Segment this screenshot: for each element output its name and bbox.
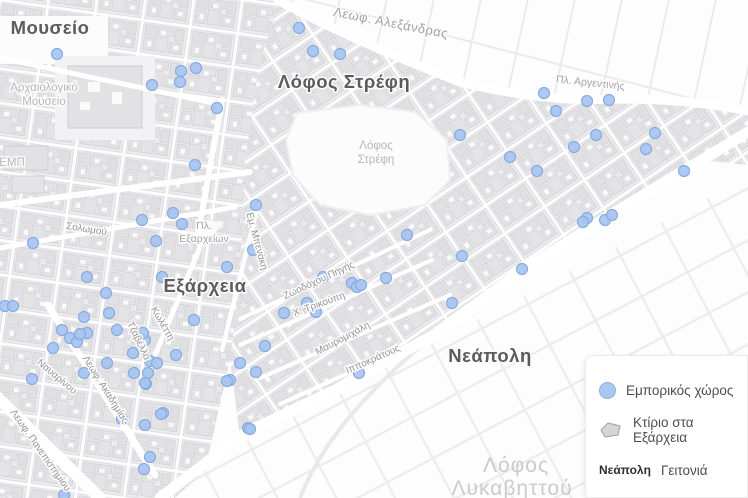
map-marker[interactable]: [8, 301, 19, 312]
building-icon: [599, 421, 623, 439]
map-marker[interactable]: [189, 315, 200, 326]
legend-item-label: Γειτονιά: [661, 463, 708, 478]
map-marker[interactable]: [356, 280, 367, 291]
map-label: Λόφος: [359, 140, 393, 152]
map-marker[interactable]: [457, 251, 468, 262]
map-marker[interactable]: [582, 96, 593, 107]
map-label: ΕΜΠ: [0, 157, 25, 169]
map-label: Αρχαιολογικό: [10, 82, 78, 94]
map-marker[interactable]: [190, 160, 201, 171]
map-marker[interactable]: [591, 130, 602, 141]
map-marker[interactable]: [447, 298, 458, 309]
map-marker[interactable]: [140, 378, 151, 389]
map-marker[interactable]: [260, 341, 271, 352]
legend-item-label: Εμπορικός χώρος: [626, 383, 733, 398]
map-label: Πλ.: [196, 220, 212, 232]
legend-card: Εμπορικός χώρος Κτίριο στα Εξάρχεια Νεάπ…: [585, 355, 748, 498]
map-marker[interactable]: [177, 219, 188, 230]
map-marker[interactable]: [222, 376, 233, 387]
map-marker[interactable]: [245, 424, 256, 435]
map-marker[interactable]: [168, 208, 179, 219]
map-marker[interactable]: [191, 63, 202, 74]
legend-item-label: Κτίριο στα Εξάρχεια: [633, 415, 747, 445]
map-marker[interactable]: [308, 46, 319, 57]
map-marker[interactable]: [251, 367, 262, 378]
map-label: Εξαρχείων: [179, 233, 228, 245]
map-marker[interactable]: [235, 358, 246, 369]
map-marker[interactable]: [48, 343, 59, 354]
map-marker[interactable]: [569, 142, 580, 153]
map-label: Λόφος Στρέφη: [278, 71, 410, 92]
map-marker[interactable]: [101, 288, 112, 299]
map-marker[interactable]: [79, 312, 90, 323]
map-marker[interactable]: [129, 368, 140, 379]
map-marker[interactable]: [176, 66, 187, 77]
map-marker[interactable]: [175, 77, 186, 88]
map-marker[interactable]: [604, 95, 615, 106]
map-marker[interactable]: [279, 308, 290, 319]
map-label: Νεάπολη: [448, 345, 532, 366]
map-marker[interactable]: [171, 350, 182, 361]
map-marker[interactable]: [294, 23, 305, 34]
map-marker[interactable]: [335, 49, 346, 60]
legend-item-neighborhood: Νεάπολη Γειτονιά: [599, 450, 747, 490]
map-marker[interactable]: [679, 166, 690, 177]
map-marker[interactable]: [607, 210, 618, 221]
map-marker[interactable]: [52, 49, 63, 60]
map-marker[interactable]: [140, 420, 151, 431]
map-marker[interactable]: [251, 200, 262, 211]
map-marker[interactable]: [381, 273, 392, 284]
map-marker[interactable]: [650, 128, 661, 139]
map-marker[interactable]: [27, 374, 38, 385]
map-marker[interactable]: [222, 262, 233, 273]
map-marker[interactable]: [551, 106, 562, 117]
map-label: Μουσείο: [22, 96, 65, 108]
map-marker[interactable]: [156, 409, 167, 420]
map-marker[interactable]: [82, 272, 93, 283]
map-marker[interactable]: [139, 464, 150, 475]
map-marker[interactable]: [641, 144, 652, 155]
map-marker[interactable]: [112, 325, 123, 336]
map-label: Λόφος: [483, 454, 549, 477]
map-marker[interactable]: [455, 130, 466, 141]
map-label: Λυκαβηττού: [451, 477, 572, 498]
map-marker[interactable]: [28, 238, 39, 249]
commercial-space-icon: [599, 382, 616, 399]
map-marker[interactable]: [402, 230, 413, 241]
map-marker[interactable]: [578, 217, 589, 228]
legend-item-commercial-space: Εμπορικός χώρος: [599, 370, 747, 410]
map-marker[interactable]: [212, 103, 223, 114]
map-marker[interactable]: [539, 88, 550, 99]
map-marker[interactable]: [151, 236, 162, 247]
map-marker[interactable]: [145, 452, 156, 463]
map-marker[interactable]: [152, 358, 163, 369]
map-label: Εξάρχεια: [163, 275, 246, 297]
map-marker[interactable]: [143, 368, 154, 379]
legend-item-building: Κτίριο στα Εξάρχεια: [599, 410, 747, 450]
map-label: Στρέφη: [358, 154, 395, 166]
map-marker[interactable]: [75, 329, 86, 340]
neighborhood-symbol-text: Νεάπολη: [599, 463, 651, 477]
map-marker[interactable]: [517, 264, 528, 275]
map-marker[interactable]: [137, 215, 148, 226]
map-marker[interactable]: [147, 80, 158, 91]
map-marker[interactable]: [532, 166, 543, 177]
map-label: Μουσείο: [11, 17, 90, 38]
map-marker[interactable]: [102, 358, 113, 369]
map-marker[interactable]: [104, 308, 115, 319]
map-marker[interactable]: [505, 152, 516, 163]
